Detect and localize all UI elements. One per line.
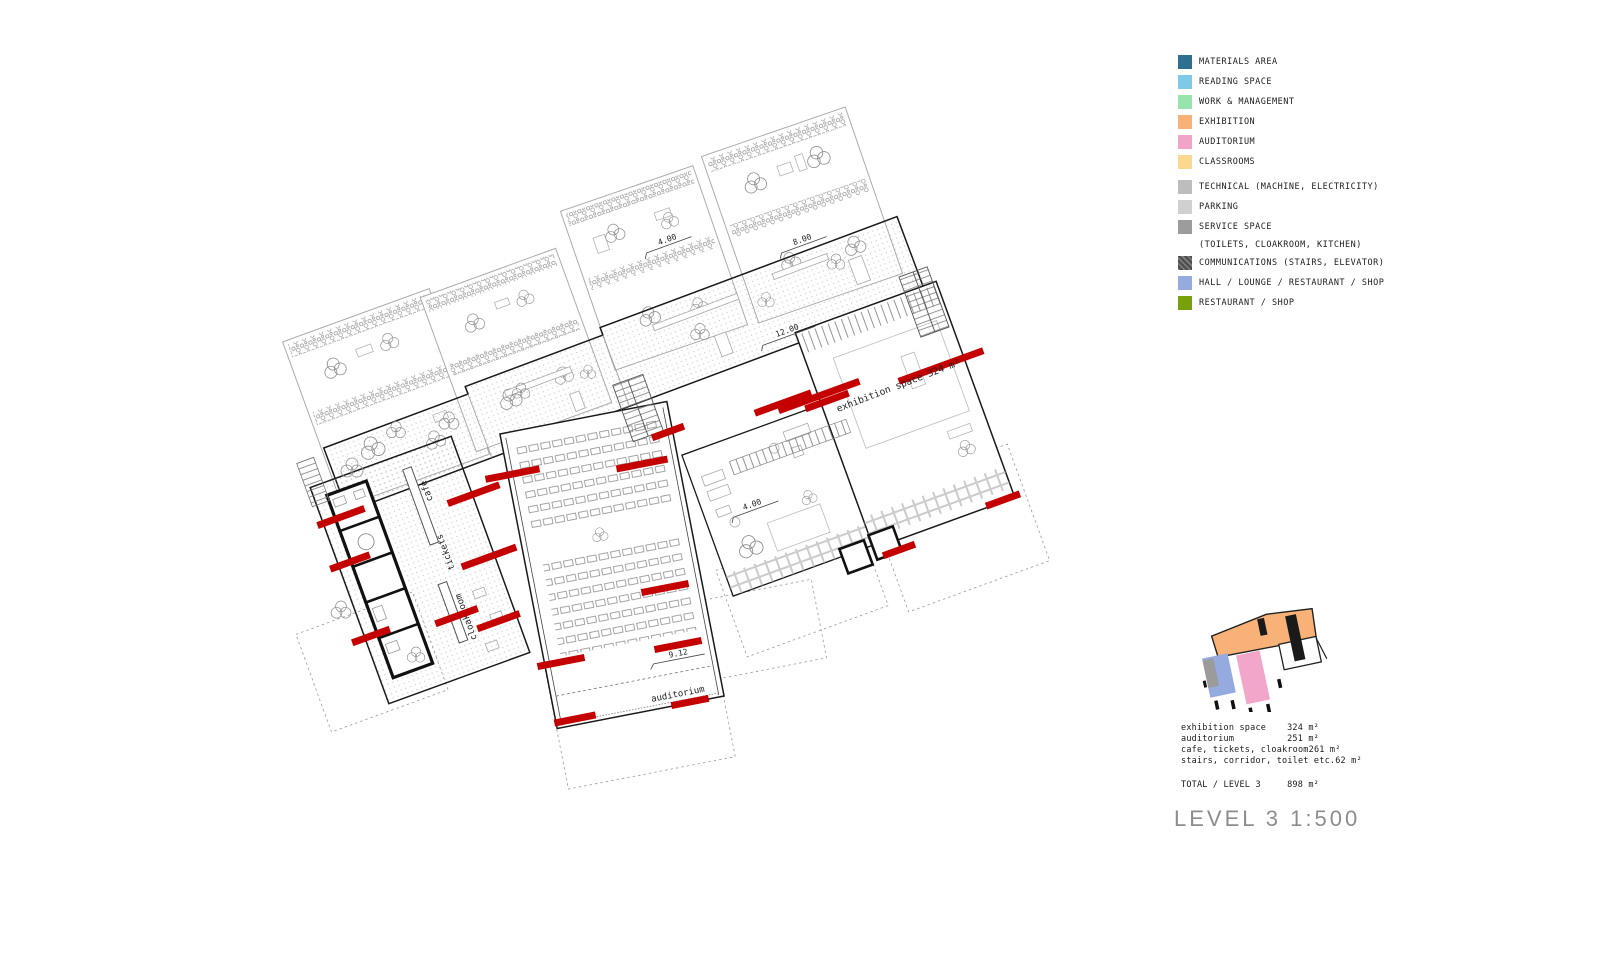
legend-swatch bbox=[1178, 276, 1192, 290]
summary-total-label: TOTAL / LEVEL 3 bbox=[1181, 780, 1261, 791]
legend-item-communications: COMMUNICATIONS (STAIRS, ELEVATOR) bbox=[1178, 253, 1384, 273]
drawing-title: LEVEL 3 1:500 bbox=[1174, 806, 1360, 832]
legend-swatch bbox=[1178, 55, 1192, 69]
legend-item-auditorium: AUDITORIUM bbox=[1178, 132, 1384, 152]
legend-item-exhibition: EXHIBITION bbox=[1178, 112, 1384, 132]
summary-total-value: 898 m² bbox=[1287, 780, 1319, 791]
key-plan bbox=[1190, 608, 1330, 712]
legend-swatch bbox=[1178, 220, 1192, 234]
legend-swatch bbox=[1178, 180, 1192, 194]
legend-swatch bbox=[1178, 135, 1192, 149]
summary-label: auditorium bbox=[1181, 734, 1234, 745]
summary-label: exhibition space bbox=[1181, 723, 1266, 734]
legend-item-work-management: WORK & MANAGEMENT bbox=[1178, 92, 1384, 112]
summary-value: 62 m² bbox=[1335, 756, 1362, 767]
summary-value: 324 m² bbox=[1287, 723, 1319, 734]
legend-item-parking: PARKING bbox=[1178, 197, 1384, 217]
summary-row: auditorium 251 m² bbox=[1181, 734, 1319, 745]
legend-item-technical: TECHNICAL (MACHINE, ELECTRICITY) bbox=[1178, 177, 1384, 197]
legend: MATERIALS AREA READING SPACE WORK & MANA… bbox=[1178, 52, 1384, 313]
legend-swatch bbox=[1178, 115, 1192, 129]
area-summary: exhibition space 324 m² auditorium 251 m… bbox=[1181, 723, 1319, 791]
legend-swatch bbox=[1178, 155, 1192, 169]
summary-label: cafe, tickets, cloakroom bbox=[1181, 745, 1309, 756]
legend-swatch bbox=[1178, 256, 1192, 270]
legend-item-materials-area: MATERIALS AREA bbox=[1178, 52, 1384, 72]
summary-row: stairs, corridor, toilet etc. 62 m² bbox=[1181, 756, 1319, 767]
summary-row: cafe, tickets, cloakroom 261 m² bbox=[1181, 745, 1319, 756]
legend-swatch bbox=[1178, 296, 1192, 310]
legend-item-classrooms: CLASSROOMS bbox=[1178, 152, 1384, 172]
legend-item-service-space: SERVICE SPACE bbox=[1178, 217, 1384, 237]
legend-item-reading-space: READING SPACE bbox=[1178, 72, 1384, 92]
summary-total-row: TOTAL / LEVEL 3 898 m² bbox=[1181, 780, 1319, 791]
auditorium-wing: 9.12 auditorium bbox=[500, 402, 724, 729]
legend-swatch bbox=[1178, 95, 1192, 109]
key-plan-canvas bbox=[1190, 608, 1330, 712]
legend-item-restaurant-shop: RESTAURANT / SHOP bbox=[1178, 293, 1384, 313]
summary-value: 251 m² bbox=[1287, 734, 1319, 745]
legend-swatch bbox=[1178, 200, 1192, 214]
legend-item-service-space-sub: (TOILETS, CLOAKROOM, KITCHEN) bbox=[1199, 237, 1384, 253]
summary-label: stairs, corridor, toilet etc. bbox=[1181, 756, 1335, 767]
legend-swatch bbox=[1178, 75, 1192, 89]
legend-item-hall-lounge: HALL / LOUNGE / RESTAURANT / SHOP bbox=[1178, 273, 1384, 293]
summary-row: exhibition space 324 m² bbox=[1181, 723, 1319, 734]
summary-value: 261 m² bbox=[1309, 745, 1341, 756]
